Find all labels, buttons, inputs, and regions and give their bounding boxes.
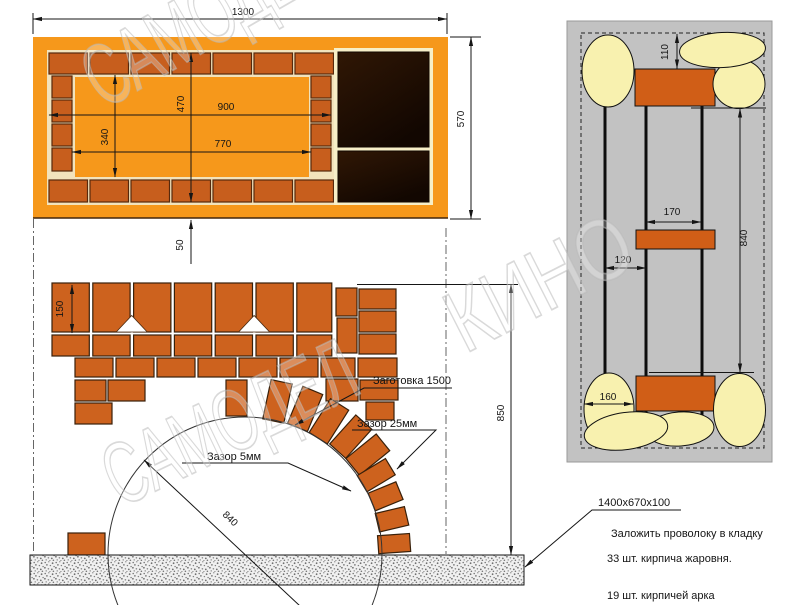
svg-text:160: 160 <box>600 392 617 403</box>
svg-text:Заложить проволоку в кладку: Заложить проволоку в кладку <box>611 528 763 540</box>
svg-text:1400х670х100: 1400х670х100 <box>598 497 670 509</box>
svg-text:340: 340 <box>100 128 111 145</box>
svg-text:840: 840 <box>739 229 750 246</box>
svg-text:19 шт. кирпичей арка: 19 шт. кирпичей арка <box>607 590 716 602</box>
svg-text:50: 50 <box>175 239 186 251</box>
svg-text:770: 770 <box>215 139 232 150</box>
svg-text:900: 900 <box>218 102 235 113</box>
svg-text:Заготовка 1500: Заготовка 1500 <box>373 375 451 387</box>
svg-text:570: 570 <box>456 110 467 127</box>
svg-text:850: 850 <box>496 404 507 421</box>
svg-text:150: 150 <box>55 300 66 317</box>
svg-text:170: 170 <box>664 207 681 218</box>
svg-text:33 шт. кирпича жаровня.: 33 шт. кирпича жаровня. <box>607 553 732 565</box>
svg-text:110: 110 <box>660 44 671 60</box>
svg-text:Зазор 25мм: Зазор 25мм <box>357 418 417 430</box>
svg-text:470: 470 <box>176 95 187 112</box>
